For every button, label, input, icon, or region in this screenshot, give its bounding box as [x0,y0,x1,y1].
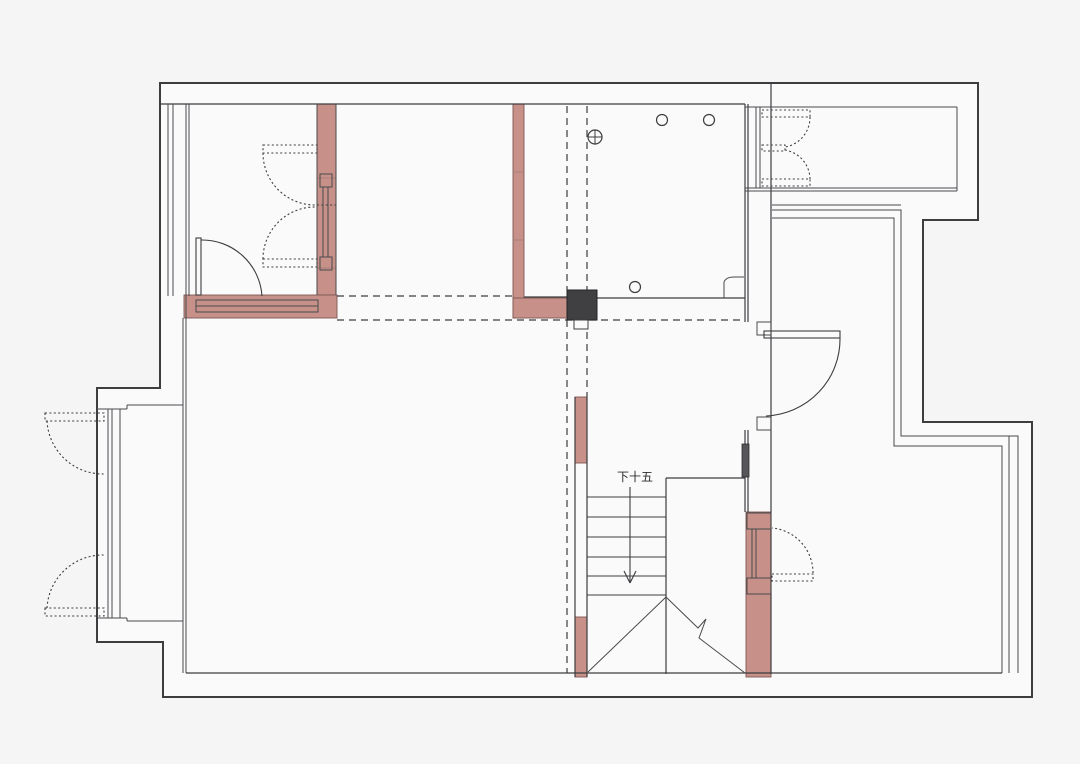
bay-shutter-swing-bottom [47,555,104,608]
column-notch [574,320,588,329]
ceiling-light-circle [657,115,668,126]
bay-shutter-swing-top [47,421,104,474]
stair-direction-label: 下十五 [617,470,653,484]
floor-plan-drawing: 下十五 [0,0,1080,764]
bay-shutter-panel-bottom [45,608,104,616]
structural-column [567,290,597,320]
pink-wall-hall-left [513,104,524,318]
ceiling-light-circle [704,115,715,126]
pink-wall-stair-left-upper [575,397,587,463]
pink-wall-hall-bottom [513,298,567,318]
floor-plan-canvas: 下十五 [0,0,1080,764]
pink-wall-stair-left-lower [575,617,587,677]
outer-boundary-wall [97,83,1032,697]
wall-switch-panel [742,444,749,477]
bay-shutter-panel-top [45,413,104,421]
ceiling-light-circle [630,282,641,293]
